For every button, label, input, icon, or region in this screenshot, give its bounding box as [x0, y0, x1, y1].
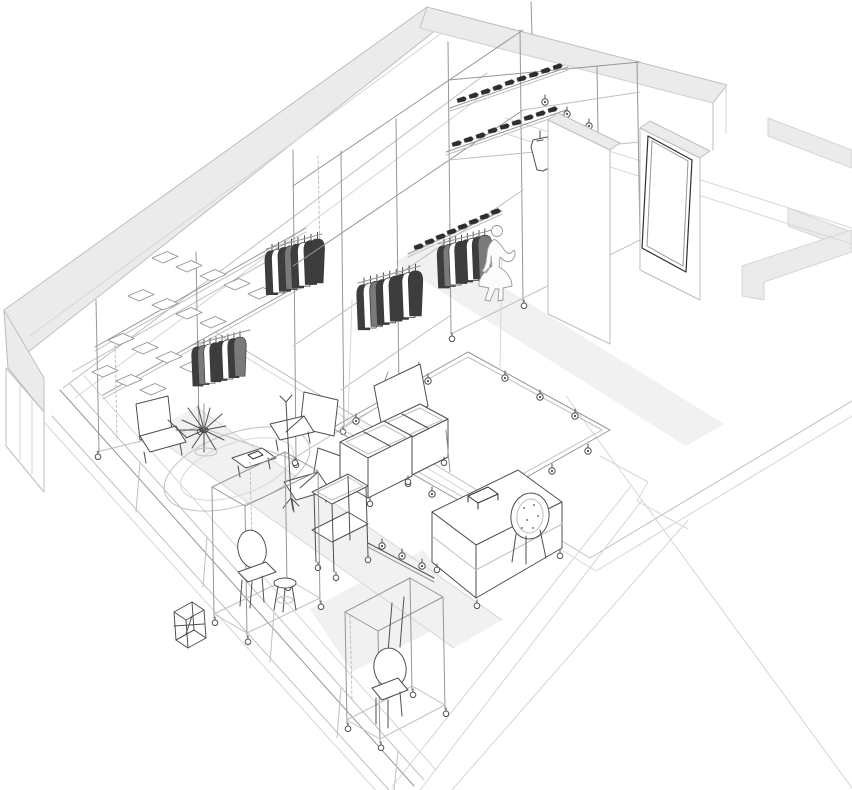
garment-cluster: [192, 331, 247, 386]
floor-plan-outline: [215, 118, 852, 790]
display-post: [196, 252, 199, 425]
glazing-mullion: [394, 752, 398, 790]
store-axonometric-drawing: Axonometric cutaway line drawing of a re…: [0, 0, 852, 790]
right-slab-a: [768, 118, 852, 168]
display-chair: [234, 528, 276, 608]
partition-slab: [548, 120, 610, 344]
display-post: [96, 300, 99, 452]
suspended-chair: [371, 646, 409, 728]
lounge-chair: [270, 392, 338, 451]
glazing-mullion: [337, 688, 341, 738]
cube-stool: [174, 602, 206, 648]
scaffold-post: [520, 30, 523, 301]
display-post: [293, 150, 296, 458]
scaffold-post: [341, 151, 344, 427]
right-slab-c: [742, 230, 852, 300]
drawing-canvas: Axonometric cutaway line drawing of a re…: [0, 0, 852, 790]
glazing-mullion: [203, 537, 207, 587]
display-stool: [274, 578, 296, 612]
glazing-mullion: [270, 612, 274, 662]
cash-desk: [432, 430, 563, 609]
leaning-mirror: [642, 136, 692, 272]
wall-face-line: [420, 28, 713, 103]
interior-partitions: [548, 113, 710, 344]
scaffold-rail: [523, 92, 640, 110]
glazing-mullion: [136, 462, 140, 512]
